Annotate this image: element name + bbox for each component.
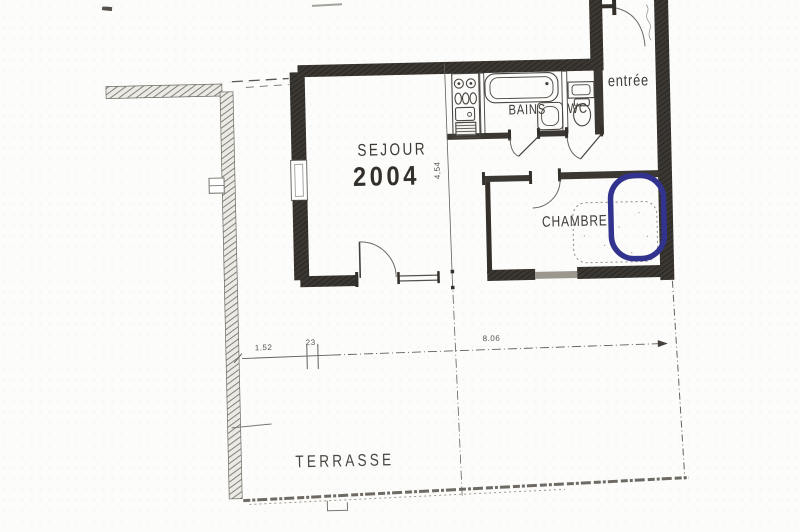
entry-door-cap	[612, 0, 616, 15]
sejour-bottom-wall	[300, 275, 358, 287]
kitchen-divider	[480, 73, 485, 137]
control-knob	[470, 93, 477, 104]
door-jamb	[508, 129, 511, 140]
dim-tick	[307, 344, 308, 369]
dim-arrowhead	[658, 340, 668, 347]
sejour-number: 2004	[353, 163, 421, 192]
bains-label: BAINS	[508, 102, 546, 117]
dim-line-dashdot	[332, 344, 660, 355]
plan-drawing	[0, 0, 800, 532]
bottom-window-line-1	[399, 275, 438, 276]
door-jamb	[565, 127, 568, 138]
sink-drain	[468, 112, 472, 116]
dim-label-23: 23	[306, 339, 316, 347]
boundary-dashes-2	[246, 84, 289, 87]
sejour-window	[291, 160, 308, 200]
control-knob	[462, 93, 469, 104]
floor-plan: SEJOUR 2004 BAINS WC entrée CHAMBRE TERR…	[0, 0, 800, 532]
window-jamb	[397, 272, 400, 284]
door-jamb	[355, 272, 358, 287]
closet-wall	[485, 182, 492, 274]
dim-tick	[318, 344, 319, 369]
terrace-bottom-edge	[243, 478, 689, 501]
sejour-left-wall-upper	[290, 72, 307, 160]
axis-line-upper	[444, 64, 452, 279]
terrace-step-notch	[327, 500, 347, 510]
door-jamb	[558, 168, 561, 181]
appliance	[456, 122, 476, 135]
bottom-window-line-2	[399, 280, 438, 281]
wc-label: WC	[567, 101, 588, 115]
chambre-bottom-wall-left	[487, 269, 535, 281]
bains-door	[510, 136, 539, 157]
window-jamb	[437, 271, 440, 283]
bottom-walls	[300, 265, 662, 288]
chambre-top-wall-left	[485, 175, 531, 182]
chambre-bottom-wall-right	[577, 265, 662, 279]
wc-washbasin	[568, 82, 594, 99]
chambre-bottom-window	[535, 271, 577, 279]
sejour-label: SEJOUR	[357, 140, 427, 159]
dim-label-806: 8.06	[483, 335, 501, 343]
dim-label-454: 4,54	[434, 161, 442, 179]
axis-node	[451, 270, 455, 274]
scan-mark	[312, 4, 342, 6]
wc-right-wall	[594, 70, 604, 134]
sejour-left-wall-lower	[292, 200, 309, 280]
entry-door-leaf	[600, 4, 614, 8]
terrasse-label: TERRASSE	[295, 451, 394, 470]
top-wall	[297, 58, 603, 77]
axis-line-lower	[452, 279, 462, 499]
boundary-dashes-1	[232, 78, 289, 81]
terrace-edges	[209, 168, 689, 514]
door-jamb	[482, 172, 485, 185]
entry-left-wall	[589, 0, 603, 60]
property-wall-top-left	[106, 84, 222, 99]
kitchen-block	[452, 73, 480, 138]
entree-label: entrée	[608, 73, 649, 90]
wc-door	[567, 133, 603, 159]
floor-plan-scan: SEJOUR 2004 BAINS WC entrée CHAMBRE TERR…	[0, 0, 800, 532]
sejour-terrace-door	[359, 241, 396, 278]
chambre-door	[532, 179, 561, 208]
bed	[573, 201, 658, 263]
scan-mark	[102, 6, 112, 11]
exterior-walls	[104, 0, 679, 502]
bathtub	[485, 72, 559, 103]
chambre-label: CHAMBRE	[542, 213, 608, 229]
bains-bottom-wall-right	[539, 130, 567, 137]
door-jamb	[529, 171, 532, 184]
axis-node	[451, 286, 455, 290]
entry-door	[600, 0, 651, 47]
dim-label-152: 1.52	[255, 344, 273, 352]
property-wall-left	[220, 92, 242, 499]
handwritten-annotation-squiggle	[646, 4, 651, 40]
scan-marks	[102, 1, 342, 12]
terrace-right-edge	[672, 281, 685, 480]
control-knob	[455, 93, 462, 104]
